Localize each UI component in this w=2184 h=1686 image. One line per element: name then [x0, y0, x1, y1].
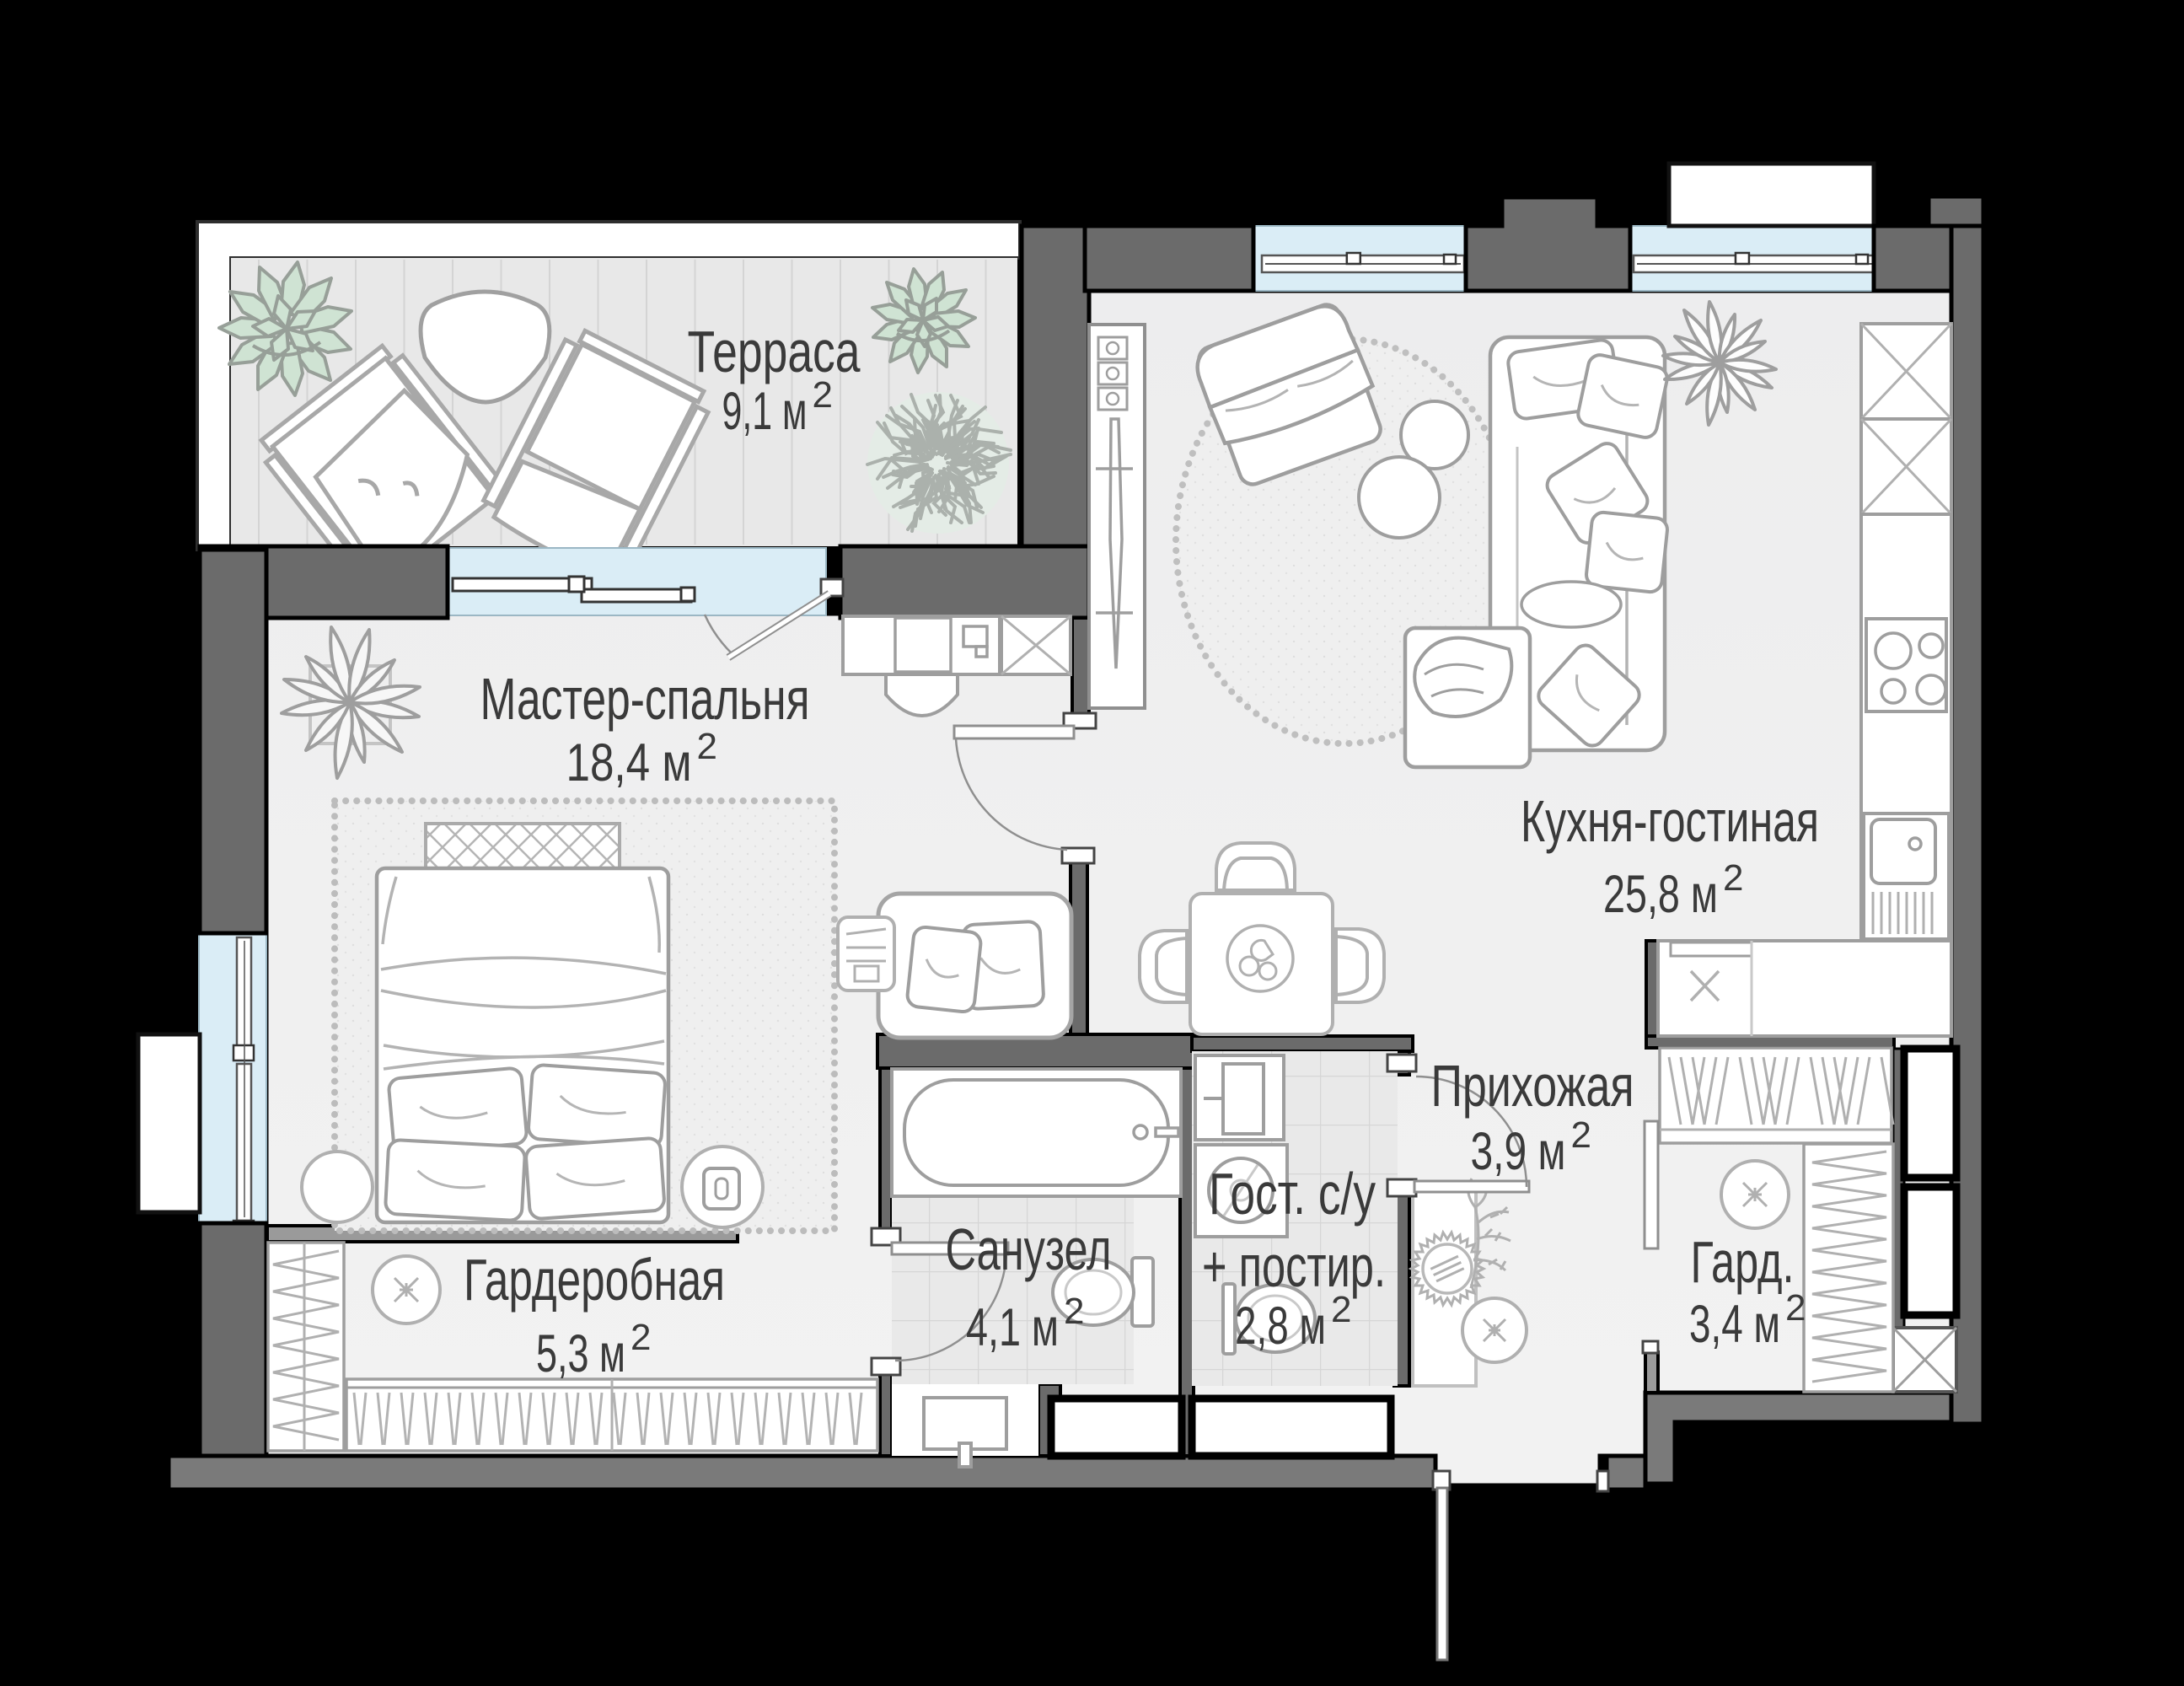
svg-text:3,9 м: 3,9 м: [1471, 1122, 1566, 1181]
svg-text:Прихожая: Прихожая: [1431, 1053, 1634, 1119]
svg-text:25,8 м: 25,8 м: [1603, 865, 1718, 924]
svg-text:Терраса: Терраса: [688, 319, 861, 384]
svg-text:Гардеробная: Гардеробная: [464, 1247, 725, 1313]
svg-text:Санузел: Санузел: [946, 1216, 1112, 1282]
svg-text:2: 2: [697, 726, 717, 767]
svg-text:Кухня-гостиная: Кухня-гостиная: [1521, 788, 1819, 854]
svg-text:Мастер-спальня: Мастер-спальня: [480, 666, 810, 732]
svg-text:3,4 м: 3,4 м: [1689, 1295, 1780, 1354]
svg-text:2: 2: [631, 1317, 651, 1358]
svg-text:Гост. с/у: Гост. с/у: [1209, 1161, 1376, 1227]
svg-text:2: 2: [813, 374, 833, 416]
svg-text:2: 2: [1064, 1291, 1084, 1332]
svg-text:2: 2: [1785, 1287, 1806, 1329]
svg-text:2: 2: [1331, 1289, 1351, 1330]
svg-text:Гард.: Гард.: [1691, 1229, 1795, 1295]
svg-text:+ постир.: + постир.: [1202, 1233, 1386, 1299]
svg-text:4,1 м: 4,1 м: [966, 1298, 1059, 1357]
svg-text:5,3 м: 5,3 м: [536, 1324, 625, 1383]
svg-text:18,4 м: 18,4 м: [566, 733, 692, 792]
svg-text:9,1 м: 9,1 м: [722, 382, 808, 441]
svg-text:2: 2: [1571, 1114, 1591, 1156]
svg-text:2: 2: [1723, 857, 1743, 899]
svg-text:2,8 м: 2,8 м: [1235, 1297, 1326, 1356]
